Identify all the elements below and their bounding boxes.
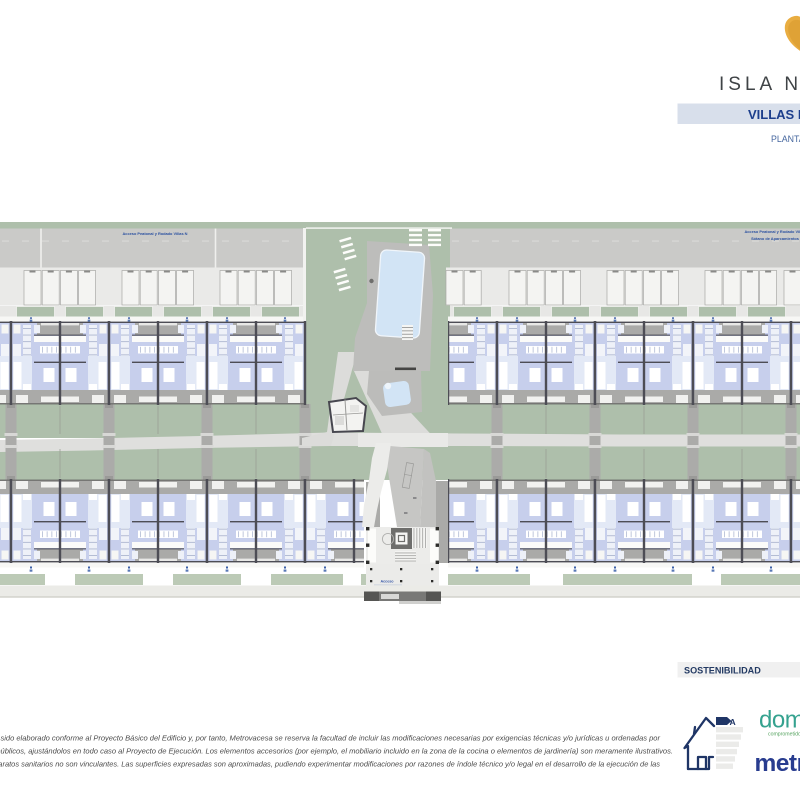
svg-text:Acceso: Acceso	[380, 580, 394, 584]
svg-text:o públicos, ajustándolos en to: o públicos, ajustándolos en todo caso al…	[0, 749, 673, 756]
svg-text:Acceso Peatonal y Rodado Villa: Acceso Peatonal y Rodado Villas N	[122, 231, 187, 236]
svg-text:metrov: metrov	[755, 750, 800, 777]
svg-text:ISLA NAT: ISLA NAT	[719, 74, 800, 95]
svg-text:Acceso Peatonal y Rodado Villa: Acceso Peatonal y Rodado Villas	[744, 229, 800, 234]
svg-text:ha sido elaborado conforme al: ha sido elaborado conforme al Proyecto B…	[0, 736, 661, 743]
svg-text:domum: domum	[759, 707, 800, 734]
svg-text:PLANTA: PLANTA	[771, 134, 800, 144]
svg-text:VILLAS E: VILLAS E	[748, 107, 800, 122]
svg-text:A: A	[730, 717, 736, 727]
svg-text:SOSTENIBILIDAD: SOSTENIBILIDAD	[684, 666, 761, 676]
svg-text:Sótano de Aparcamientos: Sótano de Aparcamientos	[751, 236, 799, 241]
svg-text:comprometidos: comprometidos	[768, 732, 800, 738]
svg-text:aparatos sanitarios no son vin: aparatos sanitarios no son vinculantes. …	[0, 762, 661, 769]
